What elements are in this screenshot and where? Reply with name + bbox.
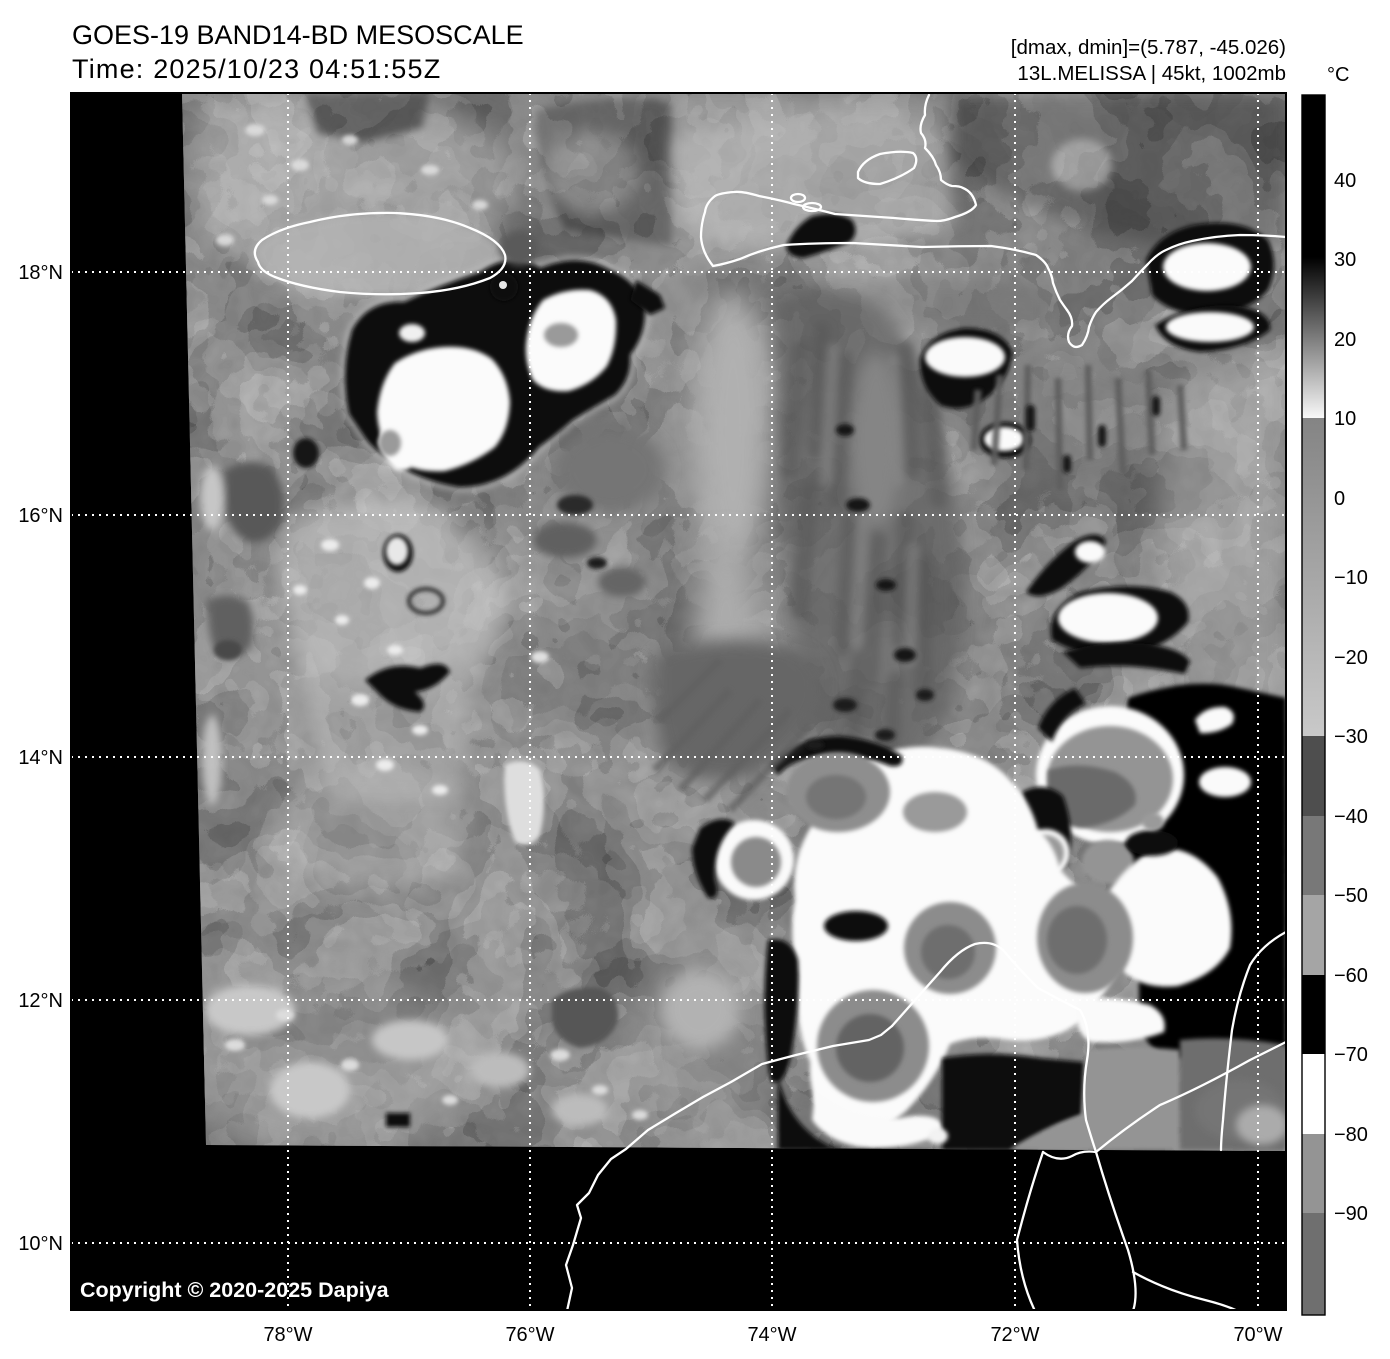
svg-text:−70: −70: [1334, 1044, 1368, 1066]
svg-text:−10: −10: [1334, 567, 1368, 589]
svg-text:−50: −50: [1334, 885, 1368, 907]
svg-text:−80: −80: [1334, 1124, 1368, 1146]
svg-text:20: 20: [1334, 329, 1356, 351]
svg-text:13L.MELISSA | 45kt, 1002mb: 13L.MELISSA | 45kt, 1002mb: [1017, 62, 1286, 85]
svg-text:76°W: 76°W: [505, 1324, 554, 1346]
svg-text:0: 0: [1334, 488, 1345, 510]
svg-text:18°N: 18°N: [18, 262, 63, 284]
svg-text:70°W: 70°W: [1233, 1324, 1282, 1346]
svg-text:14°N: 14°N: [18, 747, 63, 769]
svg-text:−40: −40: [1334, 806, 1368, 828]
svg-text:16°N: 16°N: [18, 505, 63, 527]
svg-text:−30: −30: [1334, 726, 1368, 748]
svg-text:°C: °C: [1327, 64, 1349, 86]
svg-text:30: 30: [1334, 249, 1356, 271]
svg-text:74°W: 74°W: [747, 1324, 796, 1346]
svg-text:GOES-19 BAND14-BD MESOSCALE: GOES-19 BAND14-BD MESOSCALE: [72, 20, 524, 50]
svg-text:12°N: 12°N: [18, 990, 63, 1012]
svg-text:Time: 2025/10/23 04:51:55Z: Time: 2025/10/23 04:51:55Z: [72, 54, 441, 84]
svg-text:Copyright © 2020-2025 Dapiya: Copyright © 2020-2025 Dapiya: [80, 1278, 390, 1302]
svg-text:10°N: 10°N: [18, 1233, 63, 1255]
svg-text:−60: −60: [1334, 965, 1368, 987]
svg-text:−20: −20: [1334, 647, 1368, 669]
svg-text:[dmax, dmin]=(5.787, -45.026): [dmax, dmin]=(5.787, -45.026): [1011, 36, 1286, 59]
svg-text:40: 40: [1334, 170, 1356, 192]
svg-text:78°W: 78°W: [263, 1324, 312, 1346]
svg-text:10: 10: [1334, 408, 1356, 430]
svg-text:72°W: 72°W: [990, 1324, 1039, 1346]
svg-text:−90: −90: [1334, 1203, 1368, 1225]
